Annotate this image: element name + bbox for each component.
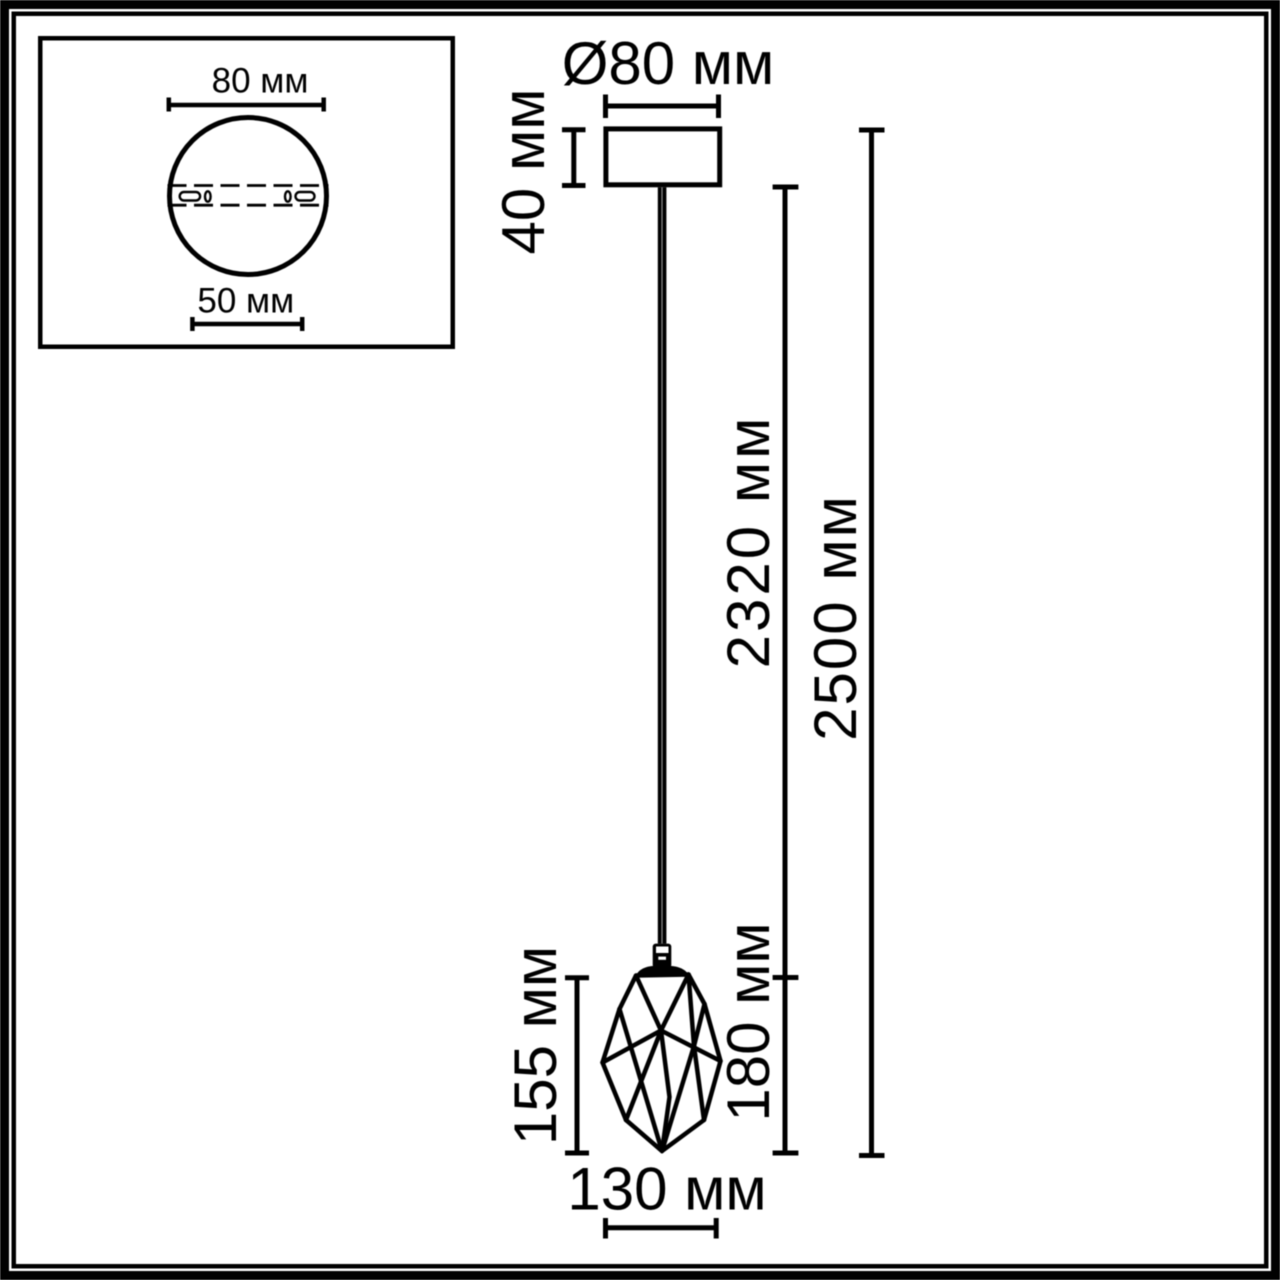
svg-text:80 мм: 80 мм — [212, 62, 309, 101]
svg-text:2500 мм: 2500 мм — [802, 494, 869, 741]
svg-text:130 мм: 130 мм — [567, 1156, 766, 1223]
svg-text:155 мм: 155 мм — [502, 946, 569, 1145]
svg-text:180 мм: 180 мм — [715, 922, 782, 1121]
svg-text:50 мм: 50 мм — [197, 282, 294, 321]
svg-text:Ø80 мм: Ø80 мм — [562, 30, 775, 97]
svg-text:40 мм: 40 мм — [490, 89, 557, 255]
svg-text:2320 мм: 2320 мм — [715, 415, 782, 669]
